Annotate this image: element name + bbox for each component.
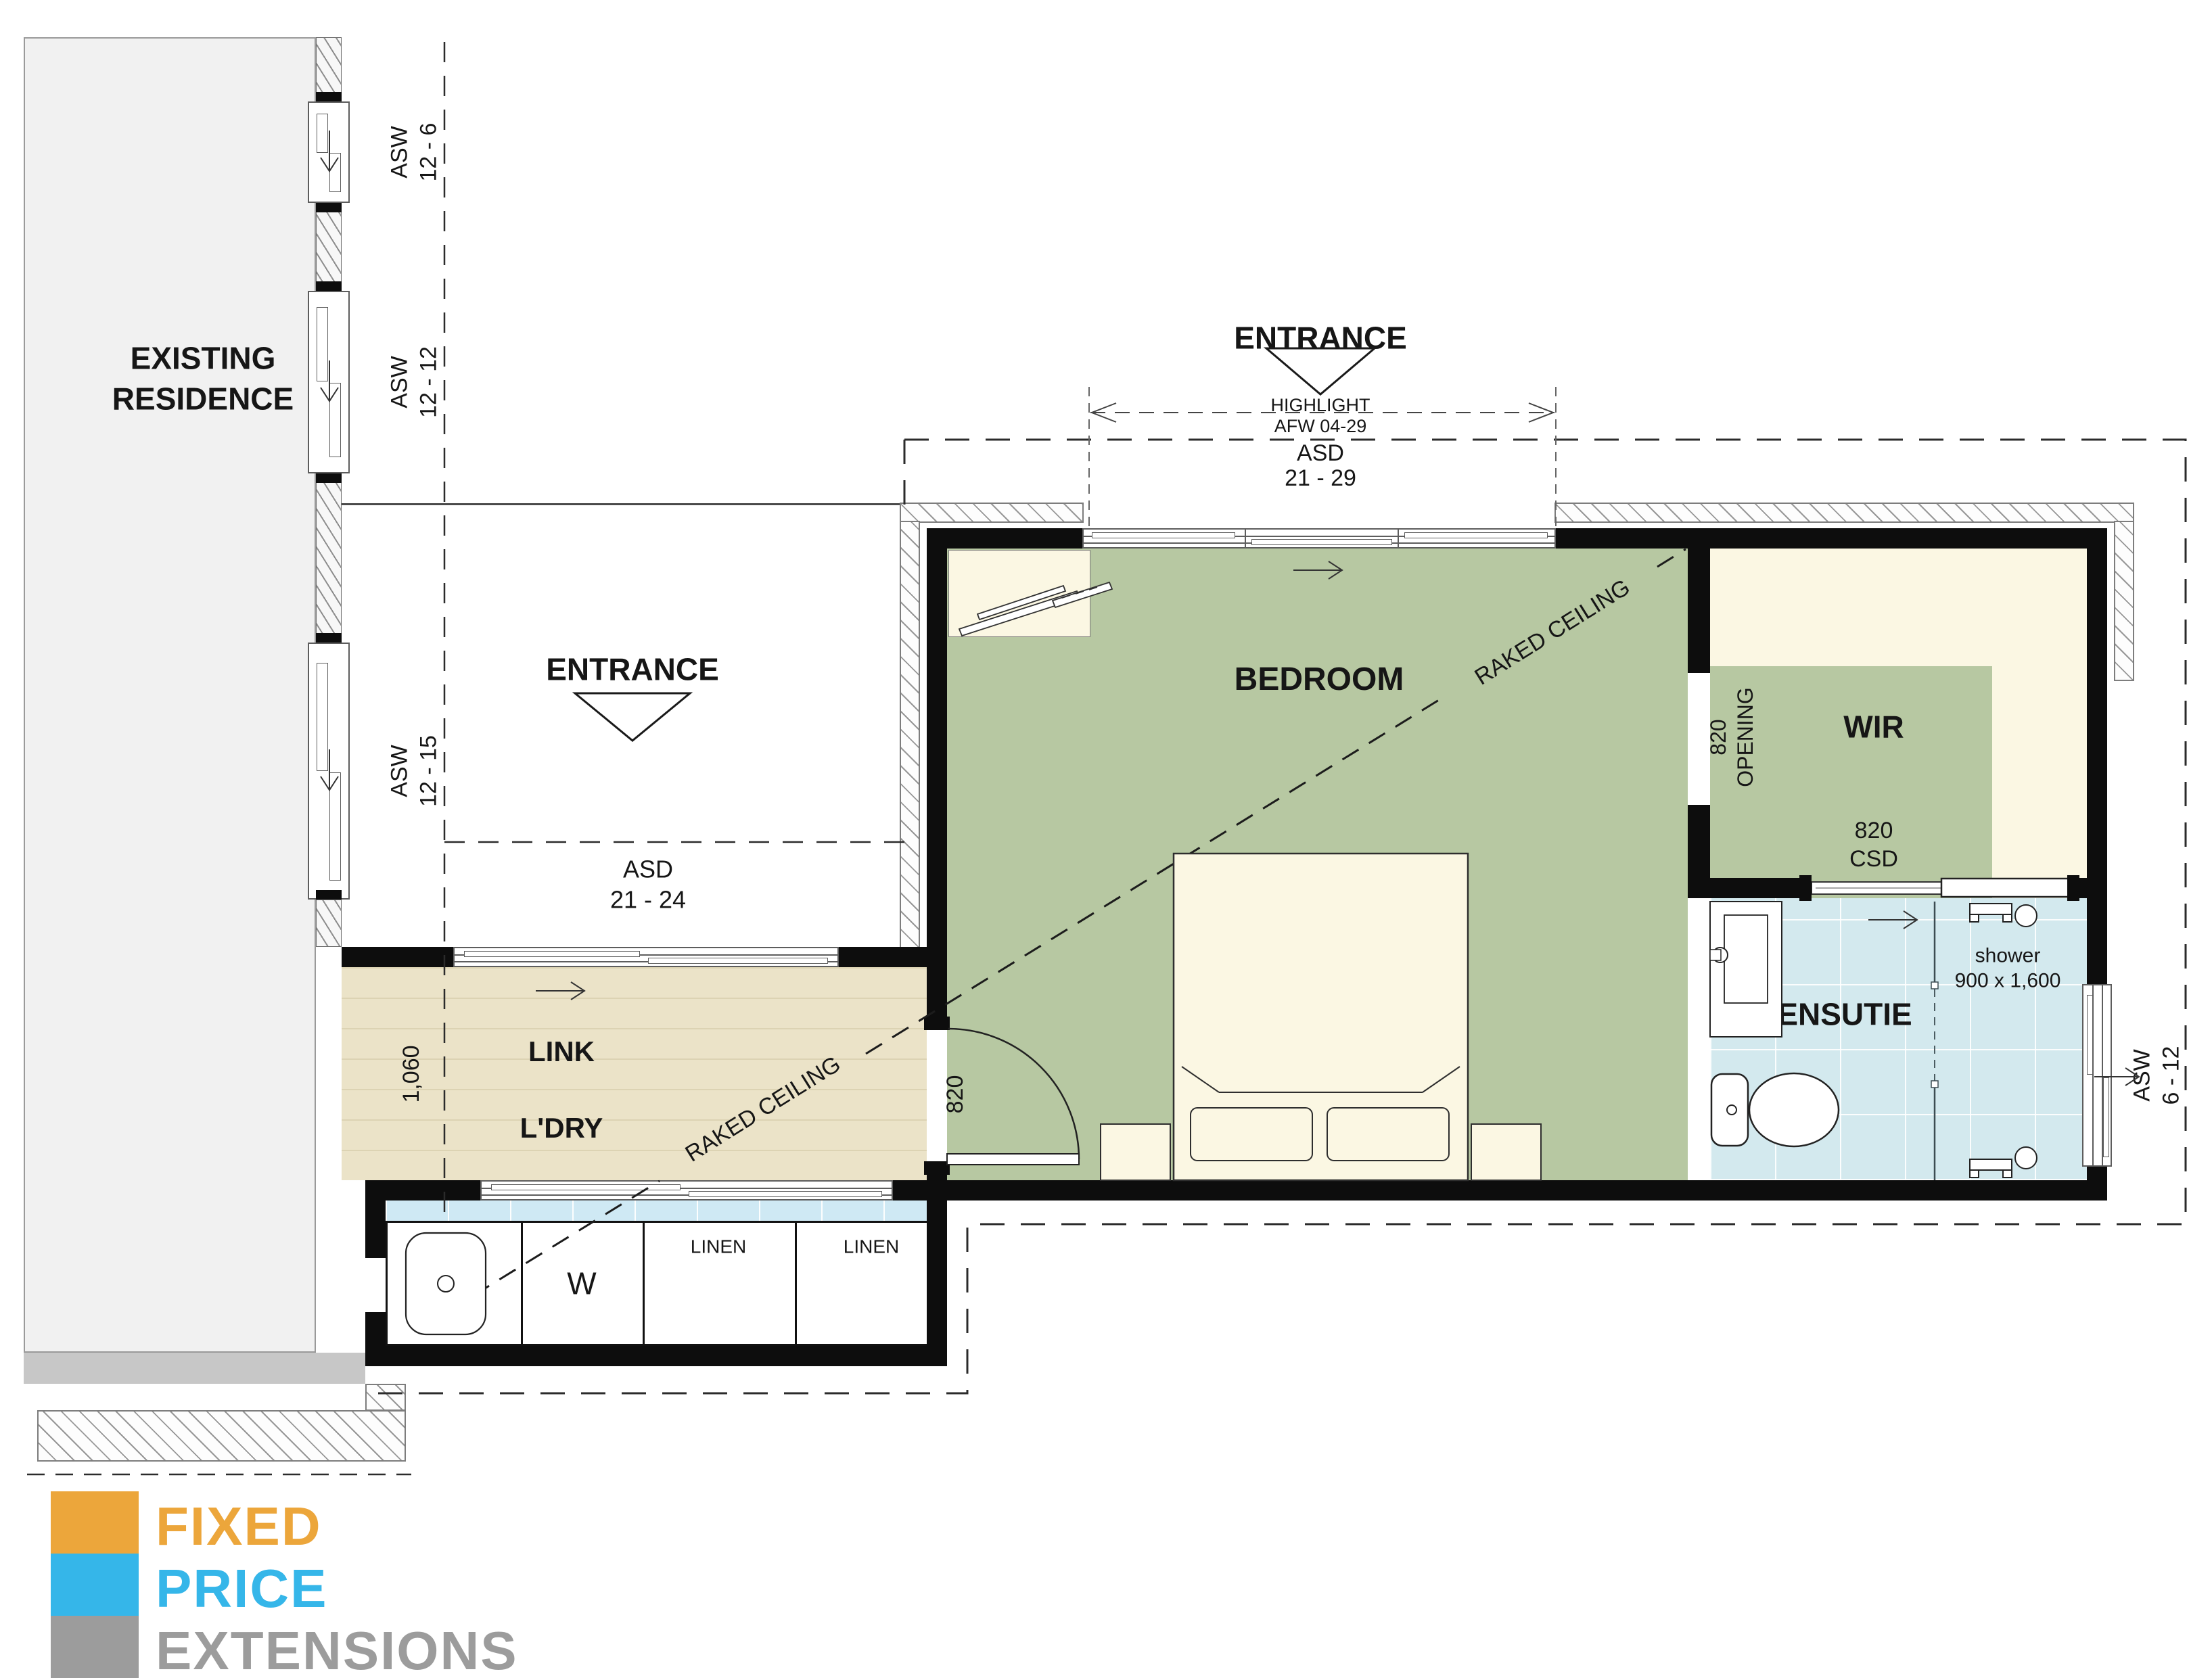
laundry-bottom-wall [365,1346,947,1366]
ensuite-east-window [2082,984,2112,1167]
shower-label: shower [1975,943,2041,969]
north-highlight-ref: AFW 04-29 [1274,415,1367,438]
courtyard-asd-label: ASD [623,854,673,885]
residence-window-asw-12-6 [308,101,350,203]
logo-block-gray [51,1616,139,1678]
bedroom-label: BEDROOM [1235,659,1404,700]
eave-top-left [900,503,1084,523]
bedroom-floor [947,549,1688,1180]
window-label-asw-12-15: ASW 12 - 15 [386,735,443,807]
north-highlight-label: HIGHLIGHT [1270,394,1370,417]
residence-bottom-band [24,1353,365,1384]
wall-top-east [1556,528,2107,549]
link-bottom-window [480,1180,893,1201]
partition-wir-ensuite-west [1688,878,1806,898]
linen-label-1: LINEN [691,1235,746,1259]
window-label-asw-12-12: ASW 12 - 12 [386,346,443,418]
laundry-left-wall-upper [365,1201,386,1258]
bedroom-door-width: 820 [941,1075,970,1114]
bed-label-line1: KING ZISE BED [1242,866,1400,893]
courtyard-entrance-arrow-icon [575,693,690,741]
logo: FIXED PRICE EXTENSIONS [51,1491,727,1678]
laundry-cabinet-divider [521,1221,523,1346]
courtyard-entrance-label: ENTRANCE [546,650,719,689]
bedroom-north-window [1082,528,1556,549]
eave-top-right [1554,503,2134,523]
partition-wir-ensuite-east [2071,878,2087,898]
logo-text-price: PRICE [156,1558,328,1620]
partition-bedroom-wir-upper [1688,549,1710,673]
logo-text-extensions: EXTENSIONS [156,1620,518,1678]
residence-label-line2: RESIDENCE [112,379,294,419]
logo-block-blue [51,1554,139,1616]
residence-window-asw-12-15 [308,643,350,900]
residence-bottom-eave-hatch [37,1410,406,1462]
existing-residence [24,37,316,1353]
residence-wall-segment [316,203,342,291]
window-label-asw-12-6: ASW 12 - 6 [386,123,443,182]
wall-right-upper [2087,528,2107,984]
linen-label-2: LINEN [844,1235,899,1259]
link-top-window [453,947,839,967]
residence-corner-hatch [365,1384,406,1411]
link-width-dim: 1,060 [397,1045,426,1102]
wir-label: WIR [1843,707,1904,747]
logo-block-orange [51,1491,139,1554]
floor-plan: EXISTING RESIDENCE ASW 12 - 6 ASW 12 - 1… [0,0,2212,1678]
wir-csd-dim: 820 [1855,816,1893,845]
north-entrance-label: ENTRANCE [1234,319,1407,358]
courtyard-top-line [342,503,910,505]
ensuite-floor [1710,898,2087,1180]
bedroom-shelf-nook [948,550,1090,637]
wall-top-west [927,528,1082,549]
link-top-wall-west [342,947,453,967]
ldry-label: L'DRY [520,1111,603,1146]
residence-label-line1: EXISTING [131,339,276,378]
ensuite-label: ENSUTIE [1777,995,1912,1034]
eave-right [2114,521,2134,681]
laundry-bench [386,1201,947,1221]
north-asd-range: 21 - 29 [1285,464,1356,493]
courtyard-asd-range: 21 - 24 [610,885,686,915]
link-top-wall-east [839,947,947,967]
shower-size: 900 x 1,600 [1955,968,2061,994]
wir-opening-dim: 820 OPENING [1705,687,1759,787]
laundry-right-wall [927,1201,947,1366]
laundry-cabinet-divider [795,1221,797,1346]
laundry-cabinet-divider [643,1221,645,1346]
logo-text-fixed: FIXED [156,1495,322,1558]
residence-window-asw-12-12 [308,291,350,473]
link-label: LINK [528,1034,595,1070]
residence-wall-segment [316,900,342,947]
eave-left [900,521,920,948]
residence-wall-segment [316,473,342,643]
bed-label-line2: 1,830 x 2,030 [1255,893,1386,920]
wir-csd-label: CSD [1849,845,1898,874]
washer-label: W [567,1264,596,1303]
window-label-asw-6-12: ASW 6 - 12 [2128,1046,2186,1105]
